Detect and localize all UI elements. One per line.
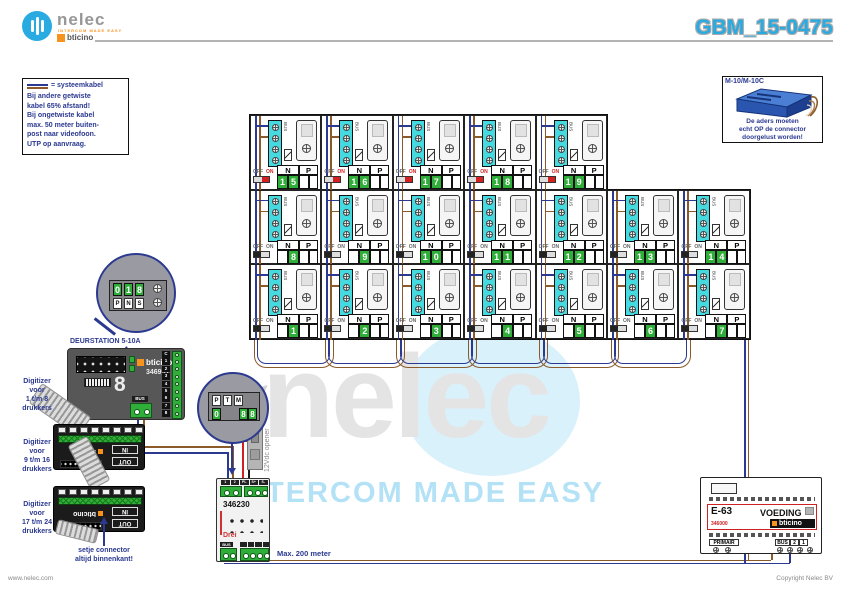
switch-knob bbox=[468, 326, 475, 331]
unit-wire-blue-stub bbox=[541, 125, 555, 127]
off-label: OFF bbox=[467, 318, 477, 324]
wall-bracket bbox=[653, 195, 674, 236]
np-table: NP3 bbox=[420, 314, 463, 339]
terminal-screw bbox=[486, 220, 493, 227]
bus-terminal-label: BUS bbox=[283, 122, 288, 131]
p-header: P bbox=[370, 314, 389, 324]
p-header: P bbox=[656, 314, 675, 324]
off-label: OFF bbox=[253, 169, 263, 175]
nelec-logo-icon bbox=[22, 11, 52, 41]
switch-label: OFFON bbox=[324, 169, 345, 175]
module-terminal-tag bbox=[69, 427, 77, 433]
terminal-screw bbox=[272, 124, 279, 131]
terminal-screw bbox=[343, 198, 350, 205]
unit-number-ones: 5 bbox=[574, 324, 585, 338]
off-label: OFF bbox=[610, 318, 620, 324]
np-table: NP4 bbox=[491, 314, 534, 339]
bus-terminal bbox=[339, 195, 353, 242]
wall-bracket bbox=[582, 195, 603, 236]
hook-icon bbox=[712, 298, 720, 310]
hook-icon bbox=[570, 298, 578, 310]
bus-terminal-label: BUS bbox=[283, 271, 288, 280]
system-cable-note: = systeemkabel Bij andere getwiste kabel… bbox=[22, 78, 129, 155]
unit-wire-blue-stub bbox=[255, 125, 269, 127]
intercom-unit-17: BUSOFFONNP17 bbox=[393, 115, 464, 190]
off-on-switch bbox=[539, 251, 556, 258]
n-header: N bbox=[491, 240, 513, 250]
off-label: OFF bbox=[324, 318, 334, 324]
n-header: N bbox=[705, 240, 727, 250]
terminal-screw bbox=[486, 209, 493, 216]
switch-knob bbox=[254, 326, 261, 331]
ps-name: E-63 bbox=[711, 506, 732, 517]
np-table: NP9 bbox=[348, 240, 391, 265]
intercom-unit-8: BUSOFFONNP8 bbox=[250, 190, 321, 265]
bracket-window bbox=[515, 124, 527, 137]
p-cell bbox=[442, 175, 452, 189]
in-port: IN bbox=[112, 445, 138, 454]
on-label: ON bbox=[337, 318, 345, 324]
p-cell bbox=[442, 250, 452, 264]
device-346991: bticino 346991 8 BUS C12345678 bbox=[67, 348, 185, 420]
bracket-screw bbox=[588, 293, 597, 302]
terminal-screw bbox=[415, 146, 422, 153]
bus-terminal-label: BUS bbox=[354, 271, 359, 280]
unit-number-tens bbox=[348, 324, 359, 338]
terminal-screw bbox=[415, 135, 422, 142]
switch-knob bbox=[262, 177, 269, 182]
p-header: P bbox=[513, 314, 532, 324]
terminal-screw bbox=[272, 231, 279, 238]
top-terminal-tag: S+ bbox=[250, 480, 259, 485]
bracket-screw bbox=[445, 293, 454, 302]
unit-number-ones: 7 bbox=[716, 324, 727, 338]
switch-knob bbox=[397, 252, 404, 257]
unit-wire-blue-stub bbox=[255, 200, 269, 202]
terminal-screw bbox=[272, 284, 279, 291]
note-line: UTP op aanvraag. bbox=[27, 140, 126, 150]
p-header: P bbox=[370, 165, 389, 175]
in-port: IN bbox=[112, 507, 138, 516]
bus-terminal bbox=[554, 195, 568, 242]
switch-label: OFFON bbox=[539, 318, 560, 324]
bus-terminal bbox=[411, 195, 425, 242]
p-cell bbox=[370, 250, 380, 264]
terminal-screw bbox=[486, 124, 493, 131]
bus-terminal-label: BUS bbox=[426, 197, 431, 206]
np-table: NP2 bbox=[348, 314, 391, 339]
terminal-screw bbox=[415, 273, 422, 280]
unit-wire-blue-stub bbox=[683, 274, 697, 276]
out-port: OUT bbox=[112, 519, 138, 528]
on-label: ON bbox=[409, 169, 417, 175]
off-on-switch bbox=[324, 176, 341, 183]
bus-terminal-label: BUS bbox=[569, 122, 574, 131]
bus-terminal-label: BUS bbox=[640, 271, 645, 280]
power-supply-e63: E-63 VOEDING 346000 bticino PRIMAIR BUS … bbox=[700, 477, 822, 554]
np-table: NP6 bbox=[634, 314, 677, 339]
connector-note: setje connectoraltijd binnenkant! bbox=[38, 546, 170, 564]
bus-terminal-label: BUS bbox=[640, 197, 645, 206]
wall-bracket bbox=[439, 269, 460, 310]
on-label: ON bbox=[623, 244, 631, 250]
terminal-screw bbox=[558, 273, 565, 280]
bracket-window bbox=[301, 199, 313, 212]
bus-terminal-label: BUS bbox=[354, 122, 359, 131]
bus-terminal bbox=[696, 195, 710, 242]
module-terminal-strip bbox=[58, 497, 142, 505]
on-label: ON bbox=[266, 244, 274, 250]
bottom-terminal-tag bbox=[248, 542, 255, 547]
wall-bracket bbox=[367, 269, 388, 310]
hook-icon bbox=[570, 149, 578, 161]
unit-number-ones: 6 bbox=[359, 175, 370, 189]
terminal-screw bbox=[343, 273, 350, 280]
bottom-terminal-tag bbox=[263, 542, 270, 547]
terminal-screw bbox=[629, 198, 636, 205]
off-on-switch bbox=[253, 176, 270, 183]
note-line: kabel 65% afstand! bbox=[27, 102, 126, 112]
hook-icon bbox=[284, 224, 292, 236]
bus-terminal bbox=[268, 120, 282, 167]
terminal-screw bbox=[415, 157, 422, 164]
p-header: P bbox=[442, 314, 461, 324]
unit-wire-blue-stub bbox=[541, 200, 555, 202]
intercom-unit-7: BUSOFFONNP7 bbox=[678, 264, 749, 339]
terminal-screw bbox=[415, 209, 422, 216]
top-terminal-tag: 2 bbox=[231, 480, 240, 485]
intercom-unit-5: BUSOFFONNP5 bbox=[536, 264, 607, 339]
mini-terminal bbox=[129, 356, 135, 363]
deurstation-label: DEURSTATION 5-10A bbox=[70, 338, 141, 345]
setting-jumper: T bbox=[223, 395, 232, 406]
terminal-screw bbox=[558, 209, 565, 216]
terminal-tag-1: 1 bbox=[162, 358, 170, 365]
terminal-screw bbox=[343, 306, 350, 313]
on-label: ON bbox=[552, 244, 560, 250]
terminal-screw bbox=[700, 284, 707, 291]
module-terminal-tag bbox=[91, 489, 99, 495]
unit-wire-blue-stub bbox=[398, 125, 412, 127]
terminal-screw bbox=[558, 198, 565, 205]
p-cell bbox=[309, 175, 318, 189]
terminal-screw bbox=[700, 295, 707, 302]
terminal-screw bbox=[415, 284, 422, 291]
unit-wire-blue-stub bbox=[255, 274, 269, 276]
bus-terminal bbox=[268, 195, 282, 242]
switch-label: OFFON bbox=[539, 169, 560, 175]
unit-number-ones: 1 bbox=[288, 324, 299, 338]
terminal-tag-3: 3 bbox=[162, 373, 170, 380]
doc-number: GBM_15-0475 bbox=[520, 16, 833, 40]
cable-legend-icon2 bbox=[27, 87, 48, 89]
unit-wire-blue-stub bbox=[326, 200, 340, 202]
bracket-window bbox=[587, 124, 599, 137]
bracket-window bbox=[658, 199, 670, 212]
intercom-unit-4: BUSOFFONNP4 bbox=[464, 264, 535, 339]
bticino-logo: bticino bbox=[770, 519, 815, 528]
p-cell bbox=[595, 250, 604, 264]
terminal-screw bbox=[486, 306, 493, 313]
out-port: OUT bbox=[112, 457, 138, 466]
terminal-screw bbox=[272, 135, 279, 142]
bracket-window bbox=[515, 273, 527, 286]
off-on-switch bbox=[681, 251, 698, 258]
terminal-screw bbox=[415, 124, 422, 131]
module-terminal-tag bbox=[58, 427, 66, 433]
off-on-switch bbox=[324, 251, 341, 258]
p-cell bbox=[513, 250, 523, 264]
p-cell bbox=[727, 250, 737, 264]
red-accent bbox=[220, 511, 222, 535]
strip-screw bbox=[175, 375, 179, 379]
bus-length-note: Max. 200 meter bbox=[277, 549, 331, 558]
p-cell bbox=[442, 324, 452, 338]
terminal-tag-8: 8 bbox=[162, 410, 170, 417]
bracket-screw bbox=[516, 144, 525, 153]
bus-terminal bbox=[339, 269, 353, 316]
hook-icon bbox=[284, 149, 292, 161]
switch-knob bbox=[325, 252, 332, 257]
p-cell bbox=[656, 250, 666, 264]
unit-number-ones: 0 bbox=[431, 250, 442, 264]
terminal-screw bbox=[700, 273, 707, 280]
terminal-screw bbox=[629, 220, 636, 227]
p-cell bbox=[513, 324, 523, 338]
terminal-screw bbox=[700, 198, 707, 205]
unit-number-tens bbox=[277, 250, 288, 264]
intercom-unit-9: BUSOFFONNP9 bbox=[321, 190, 392, 265]
n-header: N bbox=[491, 314, 513, 324]
on-label: ON bbox=[337, 244, 345, 250]
switch-label: OFFON bbox=[467, 318, 488, 324]
call-terminal-strip: C12345678 bbox=[160, 351, 184, 419]
p-cell bbox=[370, 175, 380, 189]
hook-icon bbox=[641, 224, 649, 236]
speaker-glyph: 8 bbox=[114, 373, 126, 397]
ps-model: 346000 bbox=[711, 521, 728, 527]
bus-terminal-label: BUS bbox=[426, 122, 431, 131]
hook-icon bbox=[427, 149, 435, 161]
terminal-screw bbox=[486, 157, 493, 164]
wall-bracket bbox=[296, 269, 317, 310]
intercom-unit-12: BUSOFFONNP12 bbox=[536, 190, 607, 265]
bus-terminal bbox=[339, 120, 353, 167]
unit-number-tens bbox=[705, 324, 716, 338]
terminal-screw bbox=[629, 284, 636, 291]
unit-number-tens bbox=[420, 324, 431, 338]
unit-wire-blue-stub bbox=[469, 200, 483, 202]
on-label: ON bbox=[409, 244, 417, 250]
hook-icon bbox=[427, 298, 435, 310]
bracket-screw bbox=[373, 144, 382, 153]
bus-terminal bbox=[482, 269, 496, 316]
n-header: N bbox=[348, 314, 370, 324]
top-terminal-tag: 1 bbox=[221, 480, 230, 485]
on-label: ON bbox=[480, 318, 488, 324]
bus-terminal bbox=[411, 269, 425, 316]
off-label: OFF bbox=[467, 169, 477, 175]
legend-label: = systeemkabel bbox=[51, 82, 103, 89]
np-table: NP19 bbox=[563, 165, 606, 190]
diagram-page: nelec INTERCOM MADE EASY BUSOFFONNP15BUS… bbox=[0, 0, 841, 595]
p-cell bbox=[380, 250, 389, 264]
bracket-window bbox=[301, 124, 313, 137]
module-terminal-tag bbox=[124, 489, 132, 495]
terminal-screw bbox=[486, 295, 493, 302]
bracket-screw bbox=[730, 219, 739, 228]
label-window bbox=[711, 483, 737, 494]
switch-knob bbox=[333, 177, 340, 182]
hook-icon bbox=[712, 224, 720, 236]
switch-knob bbox=[468, 252, 475, 257]
unit-wire-blue-stub bbox=[683, 200, 697, 202]
type-band: E-63 VOEDING 346000 bticino bbox=[707, 504, 817, 530]
module-terminal-tag bbox=[113, 489, 121, 495]
n-header: N bbox=[563, 165, 585, 175]
terminal-screw bbox=[558, 220, 565, 227]
panel-screw bbox=[153, 298, 162, 307]
off-label: OFF bbox=[253, 244, 263, 250]
unit-number-tens: 1 bbox=[420, 250, 431, 264]
bus-terminal-label: BUS bbox=[354, 197, 359, 206]
bracket-screw bbox=[588, 219, 597, 228]
bracket-window bbox=[444, 273, 456, 286]
np-table: NP14 bbox=[705, 240, 748, 265]
switch-label: OFFON bbox=[681, 318, 702, 324]
unit-wire-blue-stub bbox=[612, 274, 626, 276]
wall-bracket bbox=[653, 269, 674, 310]
unit-number-ones: 1 bbox=[502, 250, 513, 264]
on-label: ON bbox=[337, 169, 345, 175]
unit-number-tens bbox=[563, 324, 574, 338]
terminal-screw bbox=[272, 306, 279, 313]
bracket-screw bbox=[445, 144, 454, 153]
unit-wire-blue-stub bbox=[398, 200, 412, 202]
unit-number-ones: 2 bbox=[359, 324, 370, 338]
bus-terminal bbox=[268, 269, 282, 316]
terminal-screw bbox=[558, 231, 565, 238]
footer-left: www.nelec.com bbox=[8, 575, 53, 582]
on-label: ON bbox=[552, 318, 560, 324]
terminal-screw bbox=[629, 295, 636, 302]
terminal-screw bbox=[629, 306, 636, 313]
off-on-switch bbox=[396, 325, 413, 332]
note-line: Bij ongetwiste kabel bbox=[27, 111, 126, 121]
n-header: N bbox=[348, 165, 370, 175]
strip-screw bbox=[175, 353, 179, 357]
bus-terminal-label: BUS bbox=[497, 197, 502, 206]
terminal-tag-7: 7 bbox=[162, 403, 170, 410]
module-terminal-tag bbox=[58, 489, 66, 495]
model-number: 346230 bbox=[223, 500, 250, 509]
unit-number-tens: 1 bbox=[491, 250, 502, 264]
connector-illustration-icon bbox=[727, 83, 821, 119]
switch-label: OFFON bbox=[539, 244, 560, 250]
hook-icon bbox=[355, 298, 363, 310]
bottom-terminal-tag bbox=[240, 542, 247, 547]
hook-icon bbox=[355, 149, 363, 161]
m10-connector-box: M-10/M-10C De aders moeten echt OP de co… bbox=[722, 76, 823, 143]
terminal-screw bbox=[272, 157, 279, 164]
n-header: N bbox=[348, 240, 370, 250]
np-table: NP11 bbox=[491, 240, 534, 265]
p-cell bbox=[513, 175, 523, 189]
unit-number-ones: 8 bbox=[288, 250, 299, 264]
switch-knob bbox=[325, 326, 332, 331]
strip-screw bbox=[175, 397, 179, 401]
intercom-unit-19: BUSOFFONNP19 bbox=[536, 115, 607, 190]
p-cell bbox=[299, 250, 309, 264]
wall-bracket bbox=[724, 269, 745, 310]
unit-number-tens bbox=[277, 324, 288, 338]
terminal-screw bbox=[629, 273, 636, 280]
setting-digit: 0 bbox=[212, 408, 221, 420]
switch-knob bbox=[682, 252, 689, 257]
p-cell bbox=[380, 175, 389, 189]
unit-number-ones: 3 bbox=[645, 250, 656, 264]
settings-panel: 018PNS bbox=[109, 280, 167, 311]
setting-digit: 8 bbox=[239, 408, 248, 420]
bracket-screw bbox=[302, 293, 311, 302]
switch-label: OFFON bbox=[396, 244, 417, 250]
off-on-switch bbox=[539, 176, 556, 183]
terminal-screw bbox=[558, 124, 565, 131]
p-header: P bbox=[727, 314, 746, 324]
intercom-unit-10: BUSOFFONNP10 bbox=[393, 190, 464, 265]
p-header: P bbox=[585, 314, 604, 324]
wall-bracket bbox=[510, 120, 531, 161]
p-cell bbox=[585, 250, 595, 264]
bus-terminal-label: BUS bbox=[569, 271, 574, 280]
n-header: N bbox=[277, 240, 299, 250]
off-on-switch bbox=[467, 325, 484, 332]
off-on-switch bbox=[610, 325, 627, 332]
terminal-screw bbox=[343, 146, 350, 153]
unit-number-tens bbox=[491, 324, 502, 338]
hook-icon bbox=[570, 224, 578, 236]
terminal-screw bbox=[629, 209, 636, 216]
switch-label: OFFON bbox=[467, 244, 488, 250]
off-label: OFF bbox=[681, 244, 691, 250]
bus-terminal-label: BUS bbox=[569, 197, 574, 206]
pin-connector bbox=[76, 356, 126, 373]
bus-tag: BUS bbox=[132, 396, 148, 402]
terminal-screw bbox=[486, 146, 493, 153]
n-header: N bbox=[491, 165, 513, 175]
off-on-switch bbox=[681, 325, 698, 332]
unit-number-tens: 1 bbox=[705, 250, 716, 264]
unit-number-tens: 1 bbox=[634, 250, 645, 264]
module-terminal-tag bbox=[135, 427, 143, 433]
unit-number-tens: 1 bbox=[420, 175, 431, 189]
unit-number-ones: 7 bbox=[431, 175, 442, 189]
terminal-tag-C: C bbox=[162, 351, 170, 358]
wall-bracket bbox=[439, 120, 460, 161]
off-on-switch bbox=[253, 251, 270, 258]
terminal-screw bbox=[272, 220, 279, 227]
bus-terminal bbox=[482, 120, 496, 167]
top-terminal-tag: PL bbox=[240, 480, 249, 485]
off-on-switch bbox=[396, 251, 413, 258]
switch-label: OFFON bbox=[253, 244, 274, 250]
off-label: OFF bbox=[324, 169, 334, 175]
top-terminal-tag: S- bbox=[259, 480, 268, 485]
module-terminal-tag bbox=[69, 489, 77, 495]
p-cell bbox=[523, 324, 532, 338]
on-label: ON bbox=[480, 244, 488, 250]
m10-warning: De aders moeten bbox=[723, 118, 822, 126]
